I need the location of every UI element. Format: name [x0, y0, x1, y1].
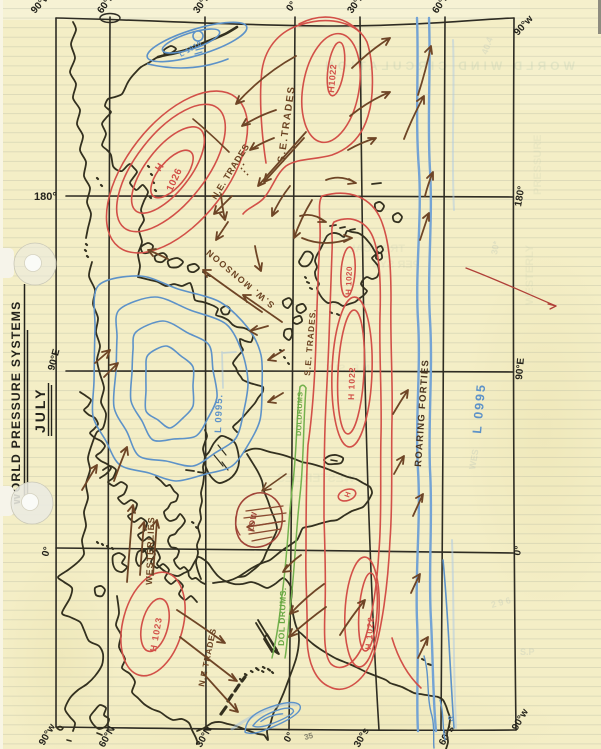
svg-text:180°: 180°: [34, 191, 57, 203]
svg-text:WORLD PRESSURE SYSTEMS: WORLD PRESSURE SYSTEMS: [9, 301, 23, 506]
svg-text:WESTERLIES: WESTERLIES: [277, 471, 355, 485]
svg-text:0°: 0°: [512, 545, 524, 556]
svg-text:DOL DRUMS.: DOL DRUMS.: [276, 587, 288, 646]
svg-text:PRESSURE: PRESSURE: [532, 134, 544, 195]
svg-text:L 0995.: L 0995.: [213, 394, 225, 433]
svg-text:H 1022: H 1022: [346, 366, 357, 400]
svg-text:H 1020: H 1020: [344, 266, 354, 295]
svg-text:JULY: JULY: [32, 386, 48, 433]
svg-text:90°E: 90°E: [514, 357, 527, 380]
svg-text:S.P: S.P: [520, 647, 535, 657]
